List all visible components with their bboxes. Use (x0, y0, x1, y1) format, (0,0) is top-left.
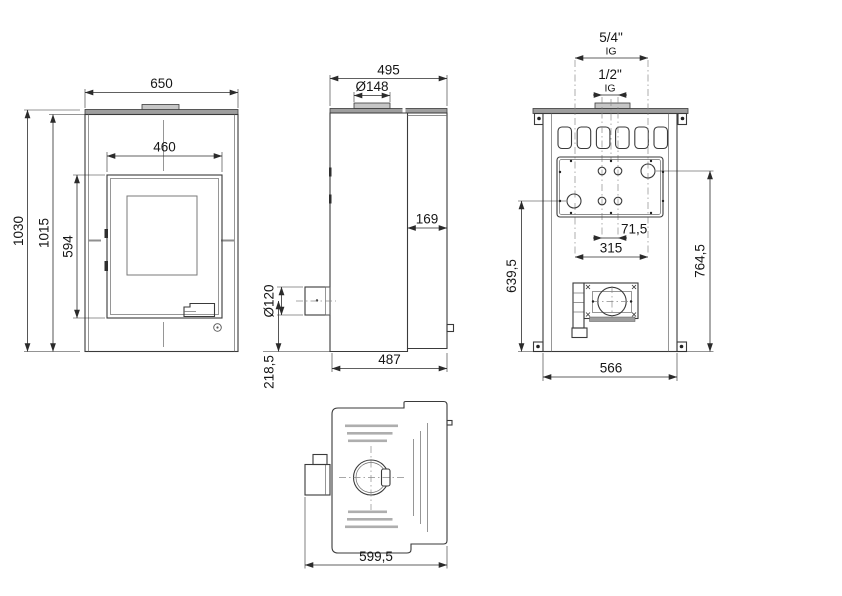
side-body (330, 113, 447, 352)
svg-text:Ø120: Ø120 (262, 284, 277, 317)
svg-text:218,5: 218,5 (262, 355, 277, 389)
door-hinge-lower (105, 261, 109, 271)
dim-top-flue-diameter: Ø148 (354, 79, 390, 102)
dim-front-body-height: 1015 (37, 115, 86, 352)
svg-text:1030: 1030 (11, 216, 26, 246)
front-view: 650 1030 1015 594 460 (11, 76, 238, 352)
back-top-plate (533, 109, 688, 114)
front-top-plate (85, 110, 238, 115)
svg-text:639,5: 639,5 (504, 259, 519, 293)
back-view: 5/4" IG 1/2" IG 71,5 315 639,5 (504, 30, 714, 381)
svg-text:487: 487 (378, 352, 401, 367)
svg-text:650: 650 (150, 76, 173, 91)
dim-large-conn: 5/4" IG (575, 30, 648, 58)
side-switch-tab (447, 325, 454, 332)
svg-text:764,5: 764,5 (693, 244, 708, 278)
dim-base-depth: 487 (332, 352, 447, 372)
svg-text:566: 566 (600, 361, 623, 376)
top-view: 599,5 (305, 402, 452, 569)
svg-text:Ø148: Ø148 (355, 79, 388, 94)
top-switch-tab (447, 421, 452, 426)
top-rear-flue-stub (305, 465, 330, 496)
svg-text:71,5: 71,5 (621, 222, 647, 237)
svg-text:1015: 1015 (37, 218, 52, 248)
dim-back-width: 566 (543, 353, 677, 381)
svg-text:169: 169 (416, 212, 439, 227)
dim-front-width: 650 (85, 76, 238, 108)
svg-text:IG: IG (604, 83, 615, 95)
svg-text:460: 460 (153, 140, 176, 155)
side-flue-collar (354, 103, 390, 109)
dim-small-conn: 1/2" IG (593, 67, 627, 95)
svg-text:594: 594 (61, 235, 76, 258)
svg-text:315: 315 (600, 241, 623, 256)
svg-text:1/2": 1/2" (598, 67, 622, 82)
svg-text:599,5: 599,5 (359, 549, 393, 564)
back-flue-collar (595, 103, 630, 109)
stove-dimension-drawing: 650 1030 1015 594 460 (0, 0, 842, 596)
svg-text:5/4": 5/4" (599, 30, 623, 45)
drawing-canvas: 650 1030 1015 594 460 (0, 0, 842, 596)
side-view: 495 Ø148 169 Ø120 218,5 (262, 63, 454, 389)
side-top-plate (330, 109, 447, 114)
svg-text:IG: IG (605, 46, 616, 58)
svg-text:495: 495 (377, 63, 400, 78)
door-hinge-upper (105, 229, 109, 238)
